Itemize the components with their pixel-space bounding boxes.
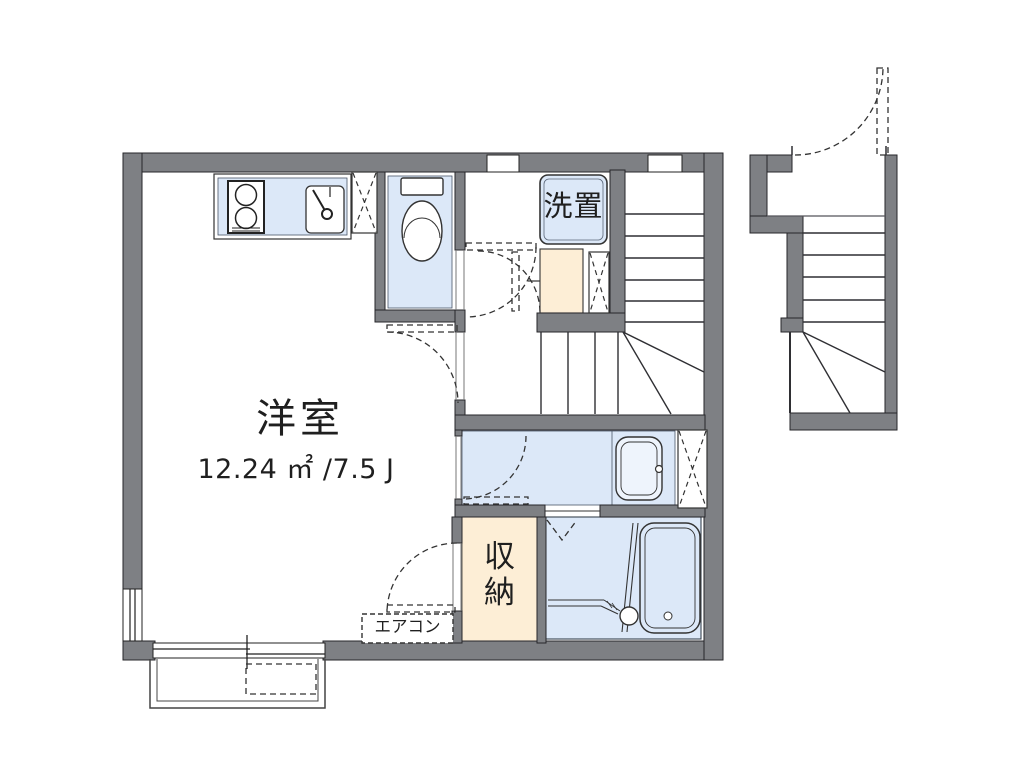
storage-label: 収納 — [483, 540, 516, 611]
floorplan-drawing — [0, 0, 1017, 773]
top-window-left — [487, 155, 519, 172]
aircon-label: エアコン — [362, 618, 453, 635]
main-room-area: 12.24 ㎡ /7.5 J — [146, 456, 446, 484]
laundry-label: 洗置 — [540, 191, 607, 221]
balcony — [150, 659, 325, 708]
floorplan-canvas: 洋室 12.24 ㎡ /7.5 J 洗置 収納 エアコン — [0, 0, 1017, 773]
entrance-door-swing — [795, 67, 883, 155]
entrance-staircase-icon — [767, 146, 886, 413]
water-heater-box — [540, 249, 583, 313]
top-window-right — [648, 155, 682, 172]
vanity-sink-icon — [612, 431, 663, 505]
bathtub-icon — [640, 523, 700, 633]
left-wall-window — [123, 589, 142, 641]
toilet-icon — [401, 178, 443, 261]
gas-stove-icon — [228, 181, 264, 233]
kitchen-sink-icon — [306, 186, 344, 233]
ac-outdoor-unit — [246, 664, 316, 694]
main-room-label: 洋室 — [200, 398, 400, 440]
kitchen-counter — [214, 174, 351, 239]
